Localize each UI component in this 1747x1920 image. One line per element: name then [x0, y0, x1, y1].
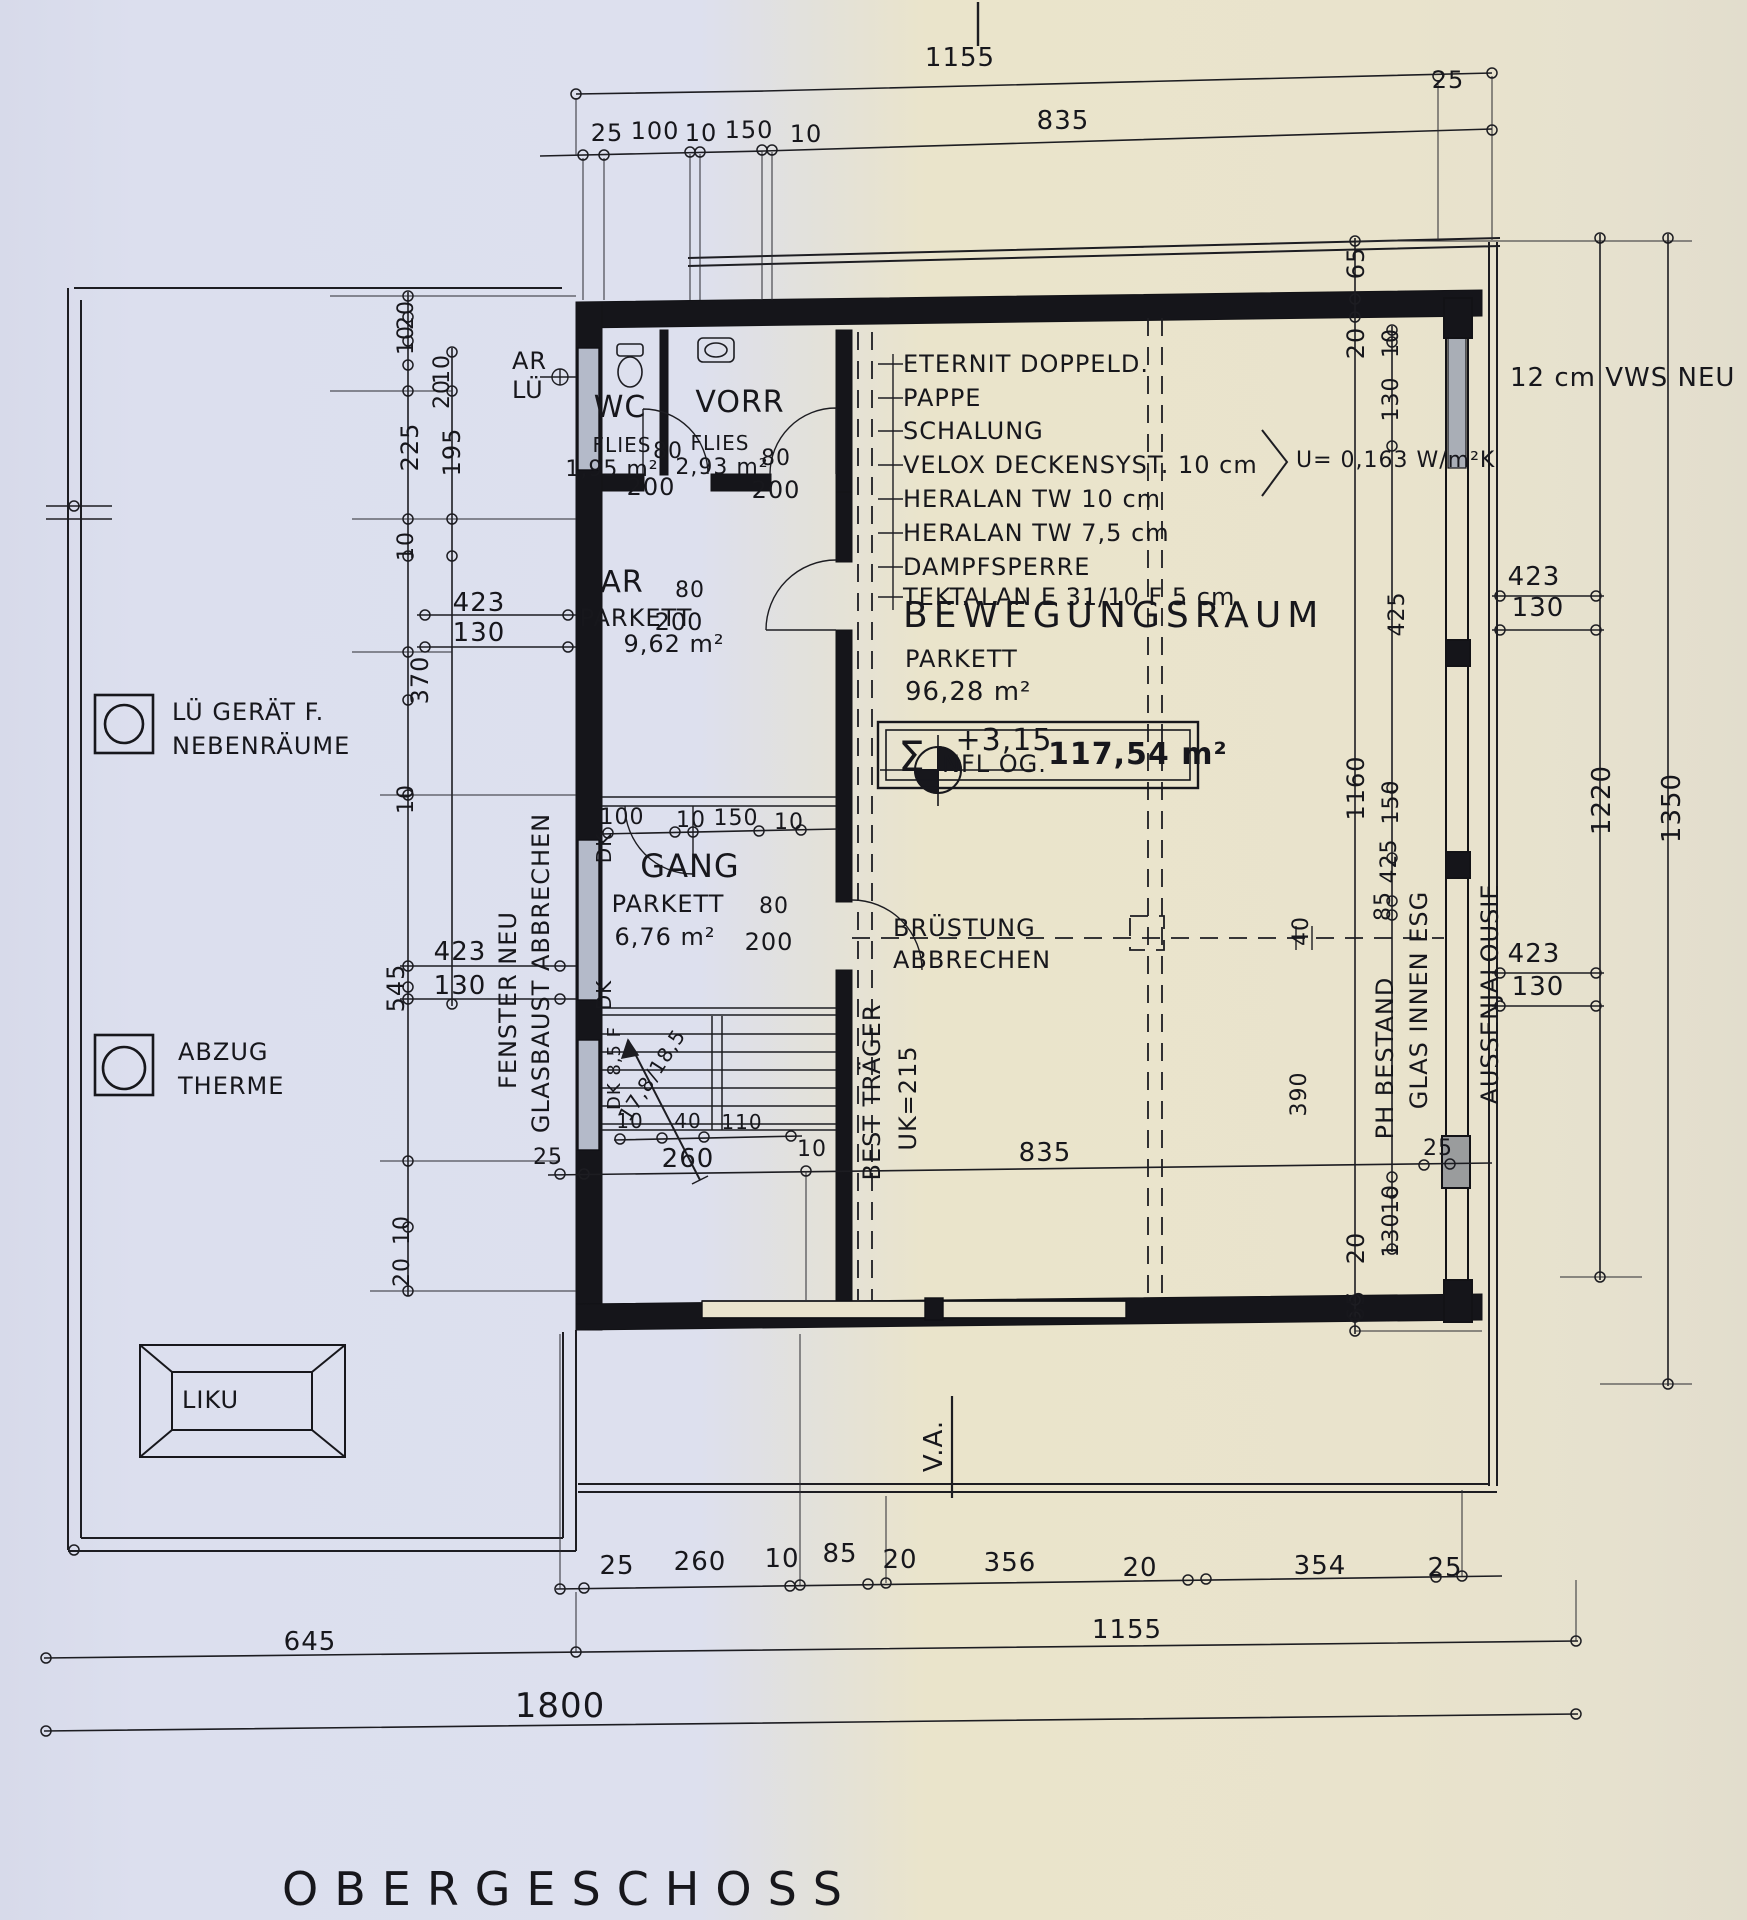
dim-bottom: 25	[1427, 1555, 1462, 1581]
dim-bottom: 25	[599, 1553, 634, 1579]
room-floor-gang: PARKETT	[612, 892, 725, 916]
vws-note: 12 cm VWS NEU	[1510, 365, 1735, 391]
room-name-gang: GANG	[640, 850, 739, 882]
ceiling-item: DAMPFSPERRE	[903, 555, 1090, 579]
dim-top-sub-total: 835	[1037, 108, 1090, 134]
dim-window-height: 130	[1512, 595, 1565, 621]
dk-label: DK	[594, 980, 614, 1011]
dim-window-height: 130	[1512, 974, 1565, 1000]
best-traeger-note: BEST TRÄGER	[860, 1004, 884, 1181]
dim-right: 390	[1289, 1072, 1311, 1117]
bruestung-note: ABBRECHEN	[893, 948, 1051, 972]
ceiling-item: VELOX DECKENSYST. 10 cm	[903, 453, 1258, 477]
dim-gang: 150	[714, 808, 759, 830]
dim-bottom: 20	[1122, 1555, 1157, 1581]
door-dim: 80	[675, 580, 705, 602]
dim-left: 20	[392, 1257, 414, 1287]
dim-right: 65	[1344, 247, 1368, 280]
bruestung-note: BRÜSTUNG	[893, 916, 1036, 940]
drawing-title: OBERGESCHOSS	[282, 1866, 858, 1912]
dim-gang: 100	[600, 807, 645, 829]
wc-fixtures	[617, 338, 734, 387]
door-dim: 200	[745, 930, 794, 954]
dk-label: DK	[594, 833, 614, 864]
dim-right: 10	[1381, 328, 1403, 358]
ceiling-item: PAPPE	[903, 386, 981, 410]
dim-bottom: 20	[882, 1547, 917, 1573]
dim-right: 425	[1387, 592, 1409, 637]
liku-label: LIKU	[182, 1388, 239, 1412]
dim-interior: 25	[1423, 1138, 1453, 1160]
door-dim: 80	[761, 448, 791, 470]
dim-top-offset: 25	[1432, 68, 1465, 92]
dim-right: 40	[1291, 916, 1313, 946]
dim-right: 130	[1381, 1213, 1403, 1258]
dim-stair: 10	[616, 1111, 643, 1131]
dim-right-total: 1350	[1659, 773, 1685, 843]
room-floor-wc: FLIES	[593, 435, 652, 455]
ceiling-item: HERALAN TW 10 cm	[903, 487, 1161, 511]
room-area-gang: 6,76 m²	[614, 925, 715, 949]
dim-right: 20	[1344, 327, 1368, 360]
dim-top-sub: 25	[591, 121, 624, 145]
dim-bottom: 260	[674, 1549, 727, 1575]
dim-right: 1160	[1344, 755, 1368, 820]
dim-window-width: 423	[1508, 941, 1561, 967]
room-floor-vorr: FLIES	[691, 433, 750, 453]
vent-unit-label: LÜ GERÄT F.	[172, 700, 324, 724]
dim-left: 195	[440, 428, 464, 477]
vent-unit-icon	[95, 695, 153, 753]
door-dim: 200	[655, 610, 704, 634]
door-dim: 200	[627, 475, 676, 499]
dim-right: 425	[1379, 839, 1401, 884]
room-floor-bewegungsraum: PARKETT	[905, 647, 1018, 671]
sum-label: NFL OG.	[942, 752, 1047, 776]
dim-left: 10	[396, 784, 418, 814]
sum-sigma: Σ	[898, 736, 926, 778]
room-name-bewegungsraum: BEWEGUNGSRAUM	[903, 598, 1324, 634]
ar-lue-label: AR	[512, 349, 547, 373]
dim-left: 10	[396, 531, 418, 561]
dim-right: 65	[1344, 1290, 1368, 1323]
glas-innen-note: GLAS INNEN ESG	[1407, 891, 1431, 1110]
floor-plan-sheet: 1155 25 25 100 10 150 10 835 20 10 10 20…	[0, 0, 1747, 1920]
dim-right: 130	[1381, 377, 1403, 422]
room-area-bewegungsraum: 96,28 m²	[905, 679, 1031, 705]
door-dim: 80	[759, 896, 789, 918]
dim-left: 370	[408, 656, 432, 705]
liku-skylight	[140, 1345, 345, 1457]
stair-dk-note: DK 8,5 F	[606, 1026, 624, 1110]
dim-left: 225	[398, 423, 422, 472]
dim-bottom-total: 645	[284, 1629, 337, 1655]
dim-window-height: 130	[453, 620, 506, 646]
room-name-wc: WC	[594, 393, 647, 423]
fenster-neu-note: FENSTER NEU	[496, 911, 520, 1089]
dim-top-sub: 10	[685, 121, 718, 145]
dim-interior: 10	[797, 1139, 827, 1161]
dim-top-sub: 100	[631, 119, 680, 143]
dim-stair: 40	[674, 1111, 701, 1131]
dim-right: 20	[1344, 1232, 1368, 1265]
va-label: V.A.	[921, 1420, 947, 1472]
sum-value: 117,54 m²	[1048, 740, 1228, 770]
dim-interior: 25	[533, 1147, 563, 1169]
dim-bottom: 354	[1294, 1553, 1347, 1579]
vent-unit-label: NEBENRÄUME	[172, 734, 350, 758]
dim-stair: 110	[721, 1112, 762, 1132]
dim-right-total: 1220	[1589, 765, 1615, 835]
dim-left: 545	[384, 964, 408, 1013]
ph-bestand-note: PH BESTAND	[1373, 977, 1397, 1140]
dim-bottom: 356	[984, 1550, 1037, 1576]
dim-left: 10	[396, 325, 418, 355]
dim-gang: 10	[676, 810, 706, 832]
dim-interior: 835	[1019, 1140, 1072, 1166]
dim-top-sub: 10	[790, 122, 823, 146]
ar-lue-label: LÜ	[512, 378, 544, 402]
dim-window-width: 423	[1508, 564, 1561, 590]
dim-bottom: 10	[764, 1546, 799, 1572]
best-traeger-uk: UK=215	[896, 1045, 920, 1150]
flue-label: THERME	[178, 1074, 284, 1098]
dim-interior: 260	[662, 1146, 715, 1172]
dim-top-sub: 150	[725, 118, 774, 142]
ceiling-item: ETERNIT DOPPELD.	[903, 352, 1149, 376]
flue-icon	[95, 1035, 153, 1095]
flue-label: ABZUG	[178, 1040, 269, 1064]
dim-window-width: 423	[434, 939, 487, 965]
dim-right: 85	[1373, 891, 1395, 921]
dim-window-width: 423	[453, 590, 506, 616]
dim-bottom: 85	[822, 1541, 857, 1567]
dim-top-total: 1155	[925, 45, 995, 71]
dim-overall-total: 1800	[515, 1689, 606, 1723]
jalousie-note: AUSSENJALOUSIE	[1478, 883, 1502, 1104]
dim-right: 150	[1381, 780, 1403, 825]
ceiling-item: HERALAN TW 7,5 cm	[903, 521, 1170, 545]
dim-right: 10	[1381, 1184, 1403, 1214]
room-name-vorr: VORR	[695, 388, 784, 418]
glasbaust-note: GLASBAUST ABBRECHEN	[529, 813, 553, 1133]
door-dim: 200	[752, 478, 801, 502]
u-value: U= 0,163 W/m²K	[1296, 450, 1495, 472]
dim-gang: 10	[774, 812, 804, 834]
dim-left: 20	[432, 379, 454, 409]
room-name-ar: AR	[600, 568, 643, 598]
dim-bottom-total: 1155	[1092, 1617, 1162, 1643]
dim-left: 10	[392, 1215, 414, 1245]
dim-window-height: 130	[434, 973, 487, 999]
ceiling-item: SCHALUNG	[903, 419, 1044, 443]
